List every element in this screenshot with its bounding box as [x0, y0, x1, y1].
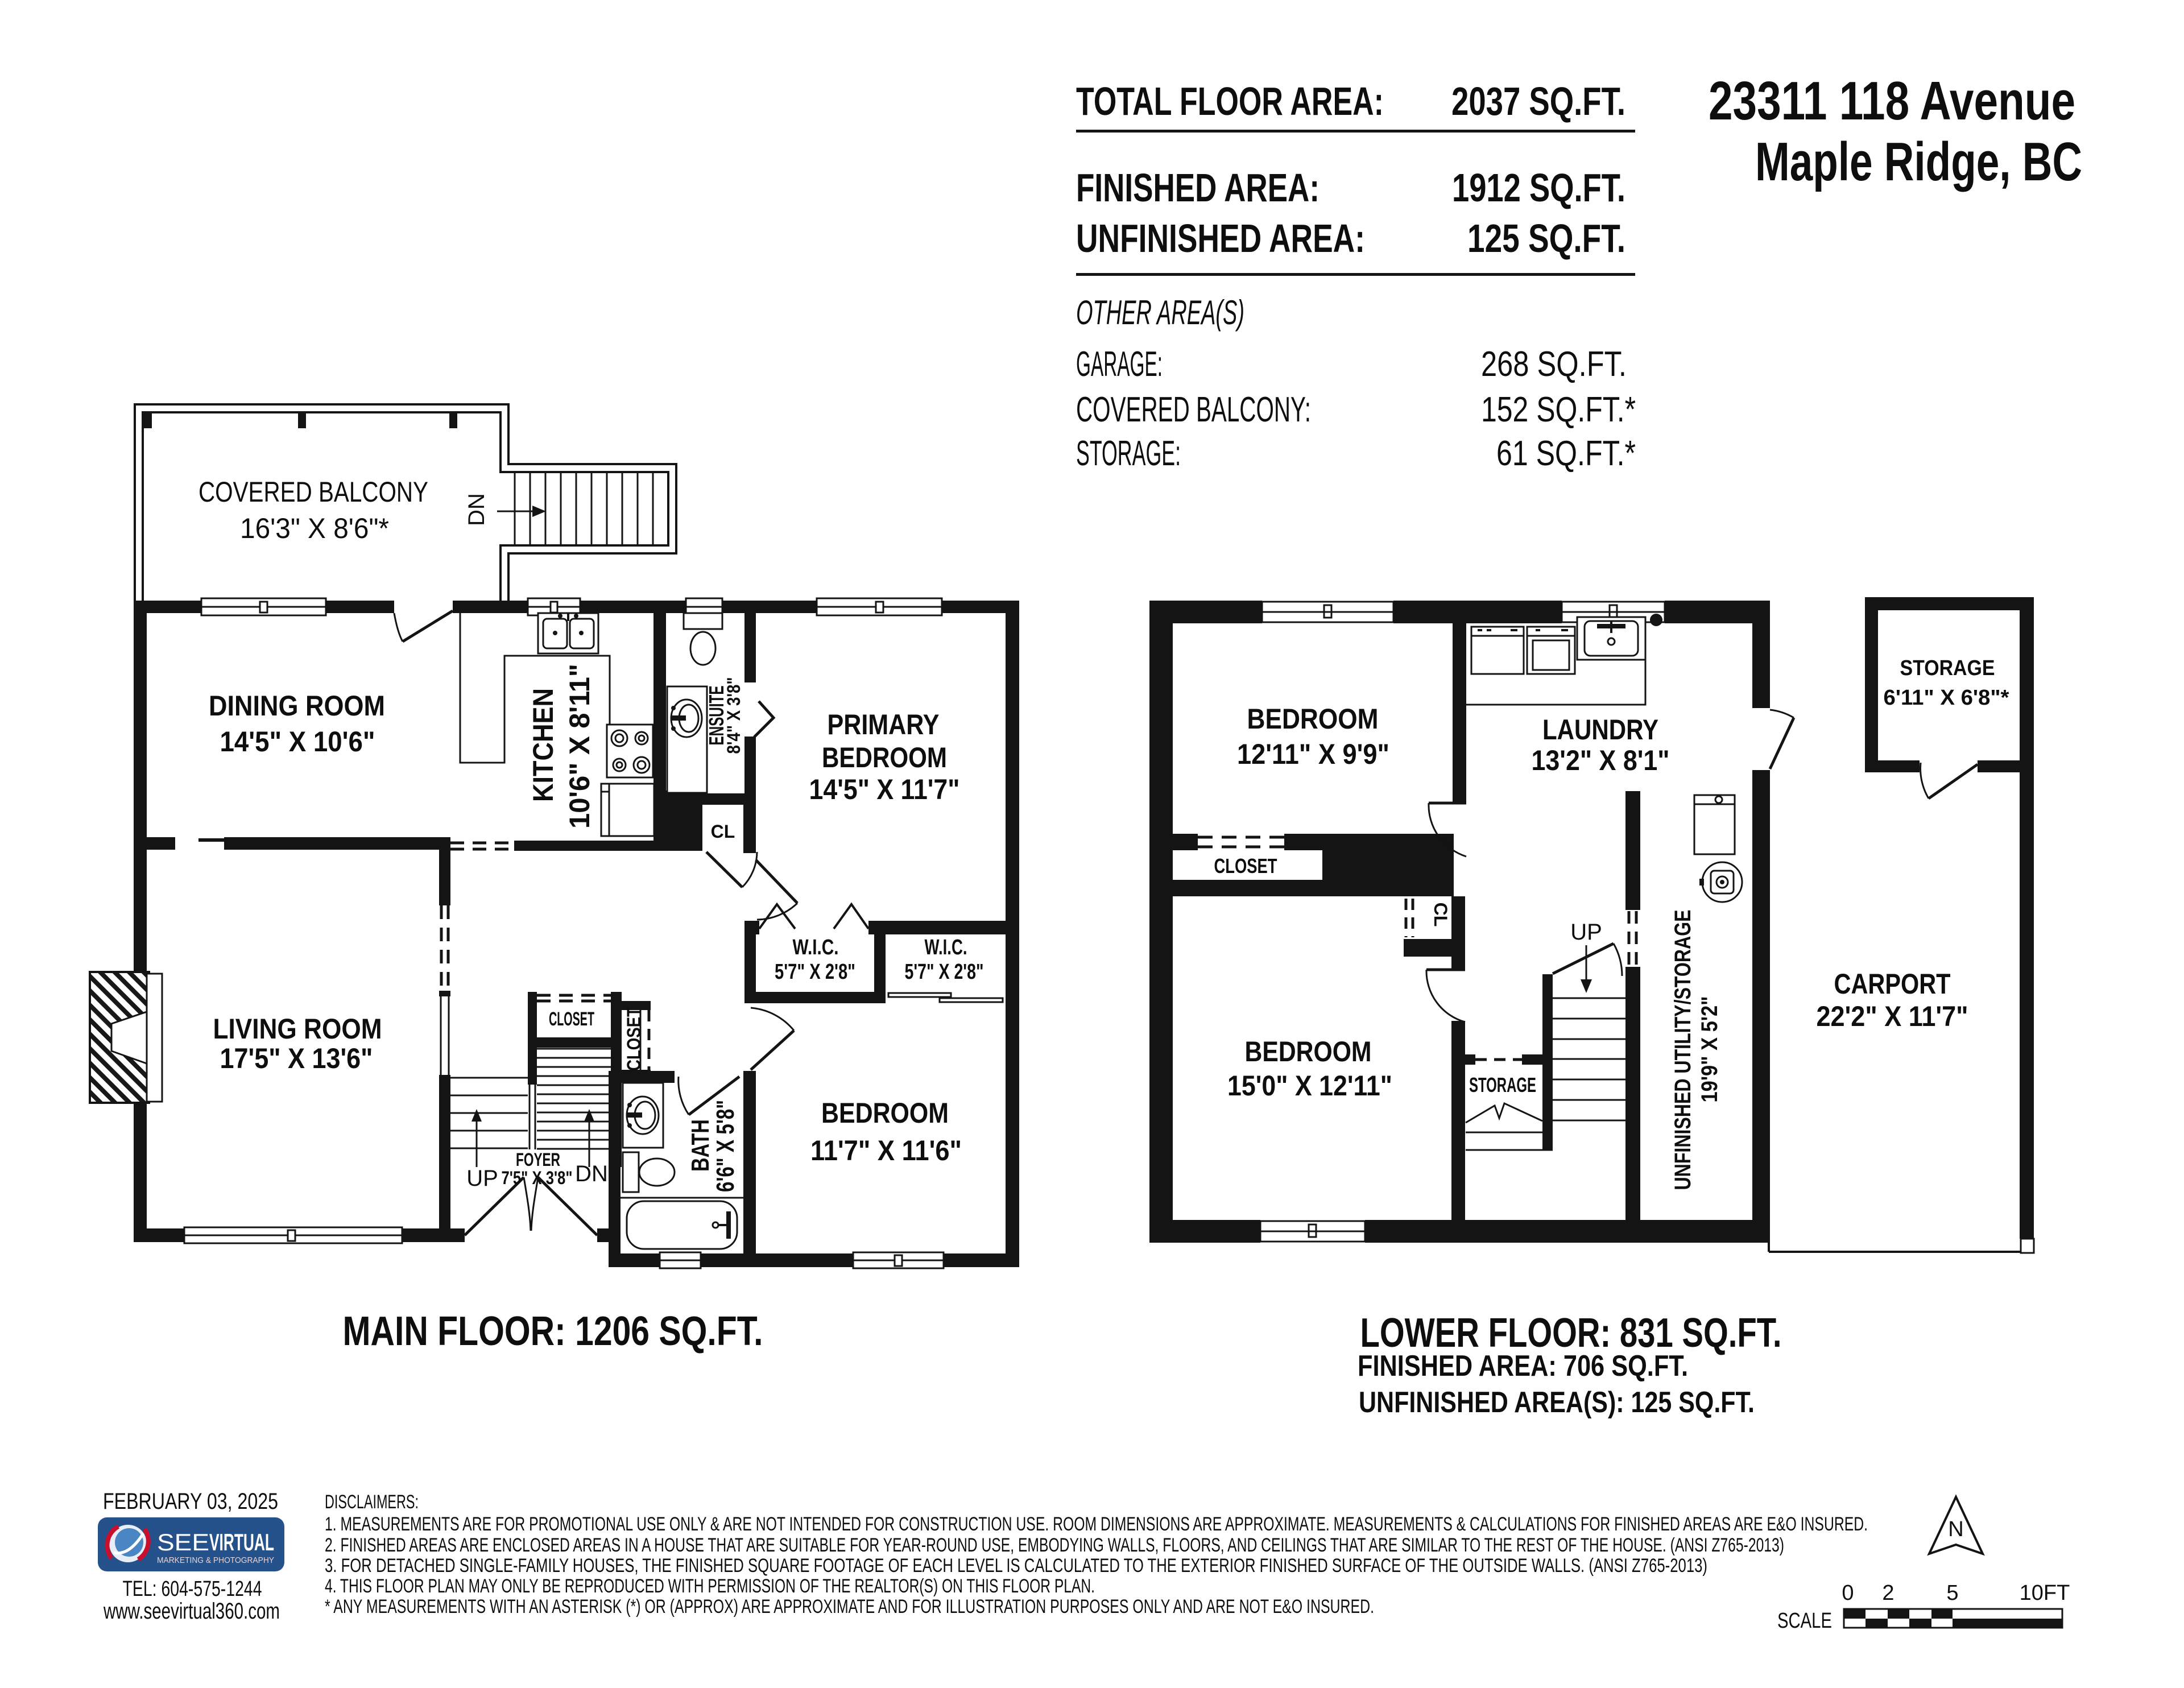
svg-text:2: 2 [1882, 1581, 1894, 1605]
svg-text:FINISHED AREA:: FINISHED AREA: [1076, 166, 1319, 210]
svg-text:14'5" X 11'7": 14'5" X 11'7" [809, 773, 960, 805]
svg-text:BATH: BATH [686, 1119, 714, 1172]
svg-text:19'9" X 5'2": 19'9" X 5'2" [1697, 996, 1722, 1103]
svg-text:OTHER AREA(S): OTHER AREA(S) [1076, 293, 1244, 332]
svg-text:1. MEASUREMENTS ARE FOR PROMOT: 1. MEASUREMENTS ARE FOR PROMOTIONAL USE … [325, 1513, 1868, 1535]
svg-text:16'3" X 8'6"*: 16'3" X 8'6"* [240, 512, 389, 544]
svg-text:23311 118 Avenue: 23311 118 Avenue [1709, 71, 2075, 131]
svg-text:MAIN FLOOR: 1206 SQ.FT.: MAIN FLOOR: 1206 SQ.FT. [343, 1309, 763, 1354]
svg-text:3. FOR DETACHED SINGLE-FAMILY: 3. FOR DETACHED SINGLE-FAMILY HOUSES, TH… [325, 1555, 1707, 1577]
svg-text:* ANY MEASUREMENTS WITH AN AST: * ANY MEASUREMENTS WITH AN ASTERISK (*) … [325, 1596, 1374, 1617]
svg-text:CL: CL [1430, 903, 1451, 927]
svg-text:CLOSET: CLOSET [549, 1008, 594, 1030]
svg-text:61 SQ.FT.*: 61 SQ.FT.* [1496, 434, 1636, 473]
svg-text:SCALE: SCALE [1777, 1609, 1832, 1633]
svg-text:6'6" X 5'8": 6'6" X 5'8" [712, 1100, 739, 1192]
svg-text:14'5" X 10'6": 14'5" X 10'6" [220, 726, 375, 758]
svg-text:LOWER FLOOR: 831 SQ.FT.: LOWER FLOOR: 831 SQ.FT. [1360, 1310, 1782, 1356]
svg-text:COVERED BALCONY:: COVERED BALCONY: [1076, 390, 1311, 429]
svg-text:10'6" X 8'11": 10'6" X 8'11" [564, 664, 595, 829]
svg-text:6'11" X 6'8"*: 6'11" X 6'8"* [1884, 686, 2009, 710]
svg-text:FEBRUARY 03, 2025: FEBRUARY 03, 2025 [103, 1489, 278, 1514]
svg-text:UP: UP [466, 1166, 498, 1191]
svg-text:DISCLAIMERS:: DISCLAIMERS: [325, 1491, 419, 1513]
svg-text:22'2" X 11'7": 22'2" X 11'7" [1817, 1000, 1968, 1032]
svg-text:BEDROOM: BEDROOM [821, 1097, 949, 1129]
svg-text:W.I.C.: W.I.C. [793, 936, 839, 959]
svg-text:BEDROOM: BEDROOM [822, 742, 947, 773]
svg-text:5: 5 [1946, 1581, 1958, 1605]
svg-text:GARAGE:: GARAGE: [1076, 345, 1163, 384]
svg-text:COVERED BALCONY: COVERED BALCONY [198, 476, 428, 508]
svg-text:UNFINISHED AREA(S): 125 SQ.FT.: UNFINISHED AREA(S): 125 SQ.FT. [1359, 1386, 1755, 1419]
svg-text:125 SQ.FT.: 125 SQ.FT. [1467, 216, 1625, 260]
svg-text:12'11" X 9'9": 12'11" X 9'9" [1237, 738, 1389, 770]
svg-text:PRIMARY: PRIMARY [828, 709, 940, 740]
svg-text:CLOSET: CLOSET [1214, 854, 1277, 878]
svg-text:CL: CL [711, 821, 735, 842]
svg-text:VIRTUAL: VIRTUAL [209, 1529, 274, 1555]
svg-text:Maple Ridge, BC: Maple Ridge, BC [1755, 131, 2082, 192]
svg-text:0: 0 [1842, 1581, 1854, 1605]
svg-text:STORAGE:: STORAGE: [1076, 434, 1181, 473]
svg-text:TOTAL FLOOR AREA:: TOTAL FLOOR AREA: [1076, 79, 1384, 123]
svg-text:www.seevirtual360.com: www.seevirtual360.com [103, 1599, 280, 1624]
svg-text:1912 SQ.FT.: 1912 SQ.FT. [1452, 166, 1625, 210]
svg-text:152 SQ.FT.*: 152 SQ.FT.* [1481, 390, 1636, 429]
svg-text:LIVING ROOM: LIVING ROOM [213, 1013, 382, 1045]
svg-text:N: N [1948, 1517, 1963, 1541]
svg-text:10FT: 10FT [2020, 1581, 2070, 1605]
svg-text:BEDROOM: BEDROOM [1247, 703, 1379, 735]
svg-text:UNFINISHED AREA:: UNFINISHED AREA: [1076, 216, 1365, 260]
svg-text:W.I.C.: W.I.C. [925, 936, 967, 959]
svg-text:17'5" X 13'6": 17'5" X 13'6" [220, 1042, 373, 1074]
svg-text:TEL: 604-575-1244: TEL: 604-575-1244 [123, 1577, 262, 1601]
svg-text:7'5" X 3'8": 7'5" X 3'8" [502, 1168, 573, 1188]
svg-text:5'7" X 2'8": 5'7" X 2'8" [905, 960, 984, 984]
svg-text:2. FINISHED AREAS ARE ENCLOSED: 2. FINISHED AREAS ARE ENCLOSED AREAS IN … [325, 1534, 1784, 1556]
svg-text:UNFINISHED UTILITY/STORAGE: UNFINISHED UTILITY/STORAGE [1670, 910, 1695, 1190]
svg-text:4. THIS FLOOR PLAN MAY ONLY BE: 4. THIS FLOOR PLAN MAY ONLY BE REPRODUCE… [325, 1575, 1095, 1597]
svg-text:STORAGE: STORAGE [1900, 656, 1995, 680]
svg-text:5'7" X 2'8": 5'7" X 2'8" [775, 960, 855, 984]
svg-text:KITCHEN: KITCHEN [527, 688, 559, 802]
svg-text:BEDROOM: BEDROOM [1245, 1036, 1372, 1068]
svg-text:MARKETING & PHOTOGRAPHY: MARKETING & PHOTOGRAPHY [157, 1555, 274, 1565]
svg-text:DN: DN [575, 1161, 608, 1186]
svg-text:LAUNDRY: LAUNDRY [1542, 714, 1658, 746]
svg-text:8'4" X 3'8": 8'4" X 3'8" [723, 677, 744, 754]
svg-text:UP: UP [1570, 920, 1602, 945]
svg-text:13'2" X 8'1": 13'2" X 8'1" [1532, 744, 1670, 776]
svg-text:DN: DN [464, 493, 489, 526]
svg-text:SEE: SEE [157, 1529, 209, 1555]
svg-text:STORAGE: STORAGE [1469, 1073, 1536, 1097]
svg-text:CARPORT: CARPORT [1834, 968, 1951, 1000]
svg-text:15'0" X 12'11": 15'0" X 12'11" [1227, 1070, 1392, 1102]
svg-text:11'7" X 11'6": 11'7" X 11'6" [810, 1135, 962, 1166]
svg-text:DINING ROOM: DINING ROOM [209, 690, 385, 722]
svg-text:FOYER: FOYER [516, 1149, 560, 1170]
svg-text:FINISHED AREA: 706 SQ.FT.: FINISHED AREA: 706 SQ.FT. [1358, 1350, 1688, 1383]
svg-text:2037 SQ.FT.: 2037 SQ.FT. [1451, 79, 1625, 123]
svg-text:268 SQ.FT.: 268 SQ.FT. [1481, 345, 1627, 384]
svg-text:CLOSET: CLOSET [623, 1007, 645, 1071]
